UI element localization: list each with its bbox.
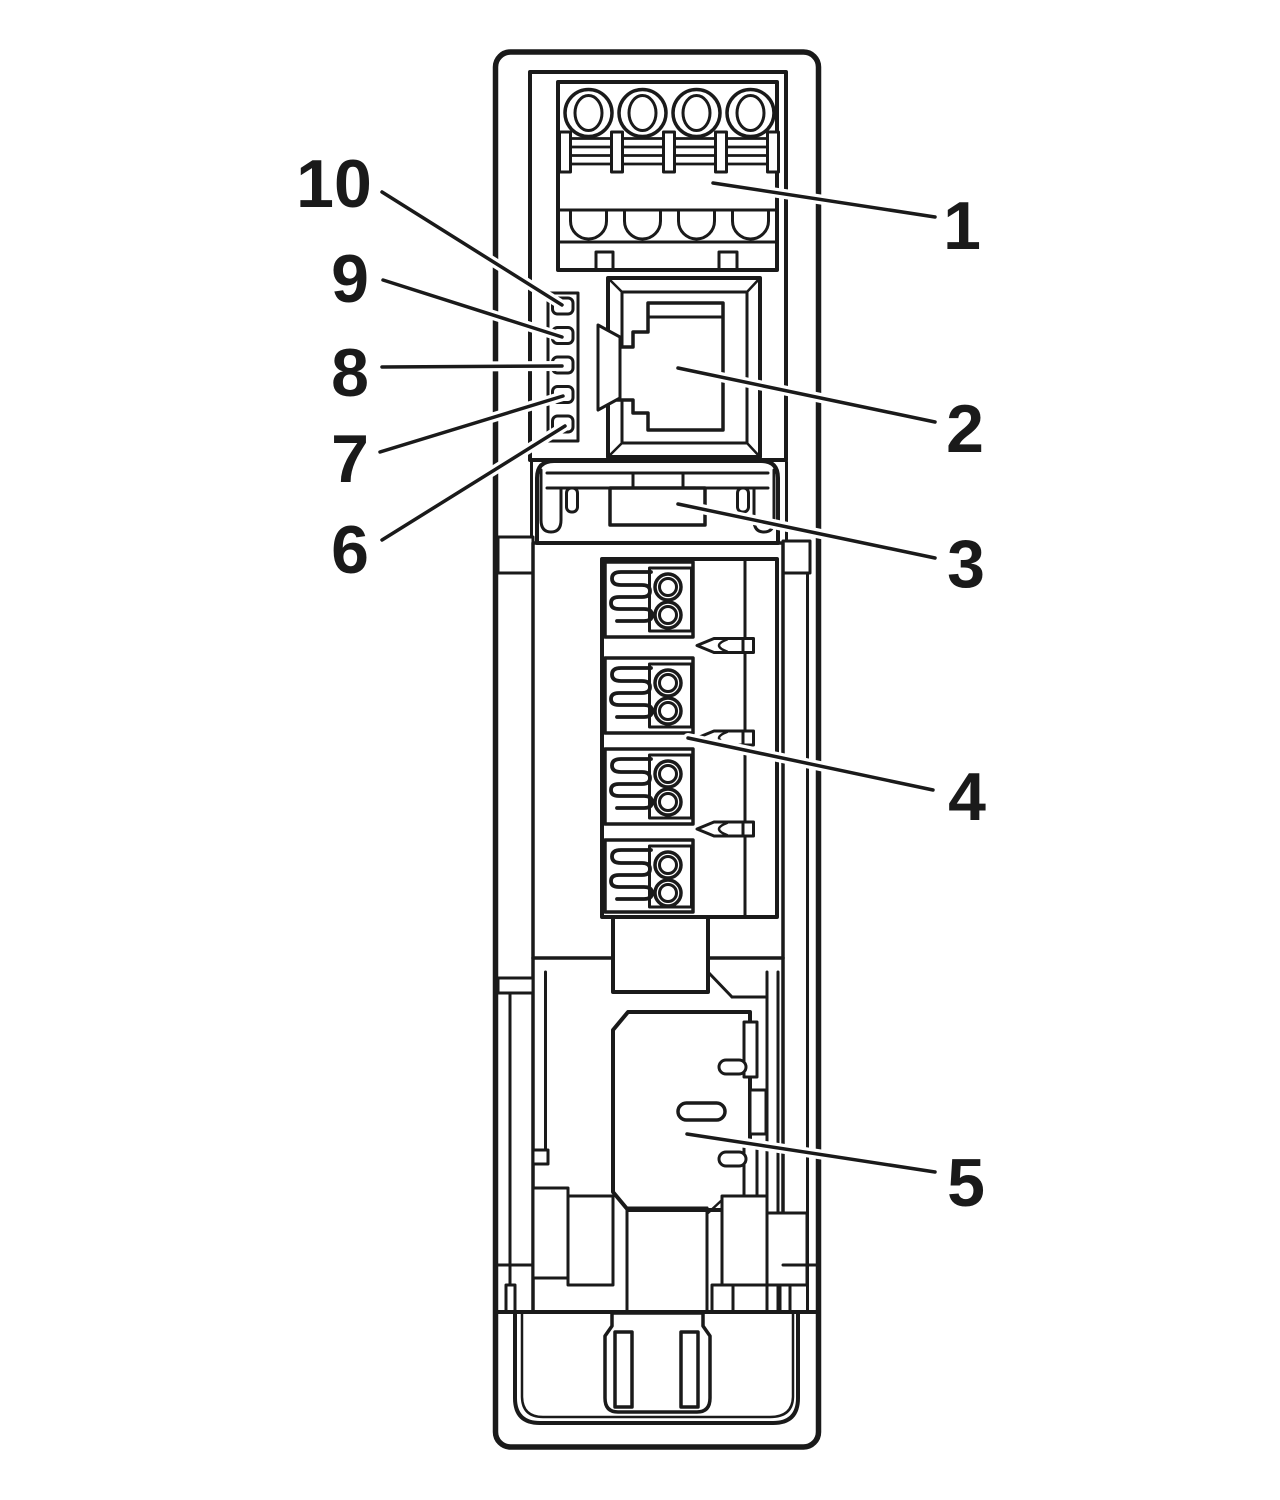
module-front-view-diagram: 1 2 3 4 5 6 7 8 9 10 [0, 0, 1280, 1500]
callout-label-6: 6 [331, 512, 369, 588]
callout-label-9: 9 [331, 241, 369, 317]
interlock-block [568, 1196, 613, 1285]
interlock-pin [712, 1285, 733, 1312]
callout-label-4: 4 [948, 759, 986, 835]
slot-stub [743, 731, 754, 745]
top-screw-terminal-block [558, 82, 779, 270]
clamp-bar [768, 132, 779, 172]
din-rail-latch-plate [613, 1012, 766, 1210]
left-step [498, 978, 533, 993]
callout-label-7: 7 [331, 421, 369, 497]
interlock-pin [506, 1285, 515, 1312]
clamp-unit-4 [605, 840, 693, 912]
interlock-block [722, 1196, 767, 1285]
clamp-bar [560, 132, 571, 172]
clamp-bar [716, 132, 727, 172]
left-step [533, 1150, 548, 1164]
interlock-block [767, 1213, 807, 1285]
interlock-block [533, 1188, 568, 1278]
frame-step-right [783, 541, 810, 573]
latch-hook-tab [719, 1060, 746, 1074]
block-bottom-tab [613, 917, 708, 992]
rj45-latch-tab [598, 325, 620, 410]
foot-column-bar [681, 1332, 698, 1407]
callout-label-10: 10 [296, 146, 372, 222]
callout-label-2: 2 [946, 391, 984, 467]
latch-hook-tab [719, 1152, 746, 1166]
latch-side-bar [744, 1142, 757, 1198]
clamp-unit-3 [605, 749, 693, 824]
frame-step-left [498, 537, 533, 573]
interlock-pin [780, 1285, 790, 1312]
clamp-bar [664, 132, 675, 172]
clamp-unit-1 [605, 562, 693, 637]
slot-stub [743, 822, 754, 836]
latch-notch [750, 1090, 766, 1134]
callout-label-1: 1 [943, 188, 981, 264]
callout-label-3: 3 [947, 526, 985, 602]
clamp-unit-2 [605, 658, 693, 733]
callout-label-8: 8 [331, 335, 369, 411]
callout-label-5: 5 [947, 1145, 985, 1221]
connector-latch [537, 461, 778, 543]
diagram-stage: 1 2 3 4 5 6 7 8 9 10 [0, 0, 1280, 1500]
foot-column-bar [615, 1332, 632, 1407]
slot-stub [743, 639, 754, 653]
callout-line [382, 366, 562, 367]
clamp-bar [612, 132, 623, 172]
latch-plate-outline [613, 1012, 750, 1210]
